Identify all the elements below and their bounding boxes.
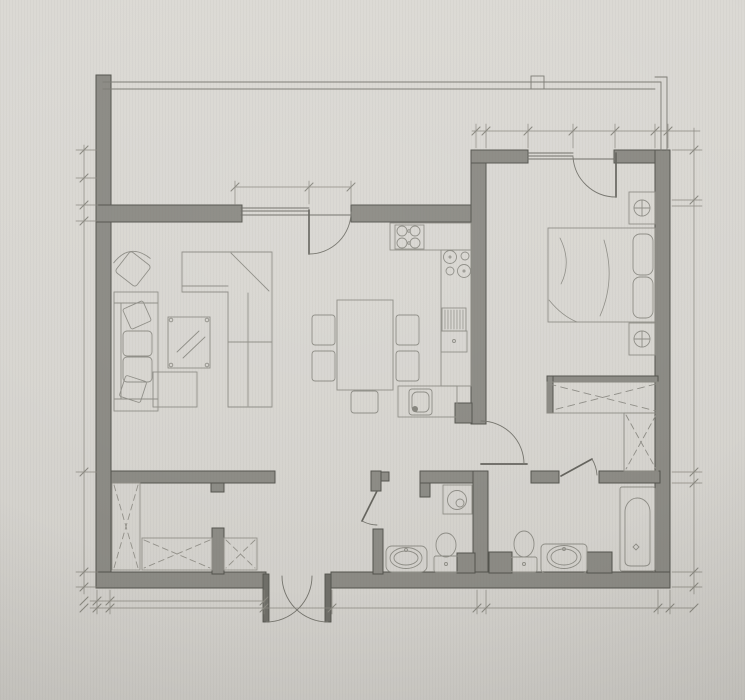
entry-closets bbox=[112, 483, 257, 570]
corridor-wall-mid-stub bbox=[420, 483, 430, 497]
ottoman bbox=[153, 372, 197, 407]
sectional-sofa-outline bbox=[182, 252, 272, 407]
blanket-fold bbox=[549, 300, 577, 322]
entry-door-left-swing bbox=[266, 576, 312, 622]
room-balcony bbox=[103, 89, 661, 205]
wc-west-flange bbox=[381, 472, 389, 481]
wardrobe-back-wall bbox=[547, 376, 658, 382]
kitchen bbox=[390, 223, 471, 417]
kitchen-bedroom-divider-wall bbox=[471, 150, 486, 424]
dining-chair bbox=[396, 315, 419, 345]
right-exterior-wall bbox=[655, 150, 670, 588]
bathtub-drain bbox=[633, 544, 639, 550]
balcony-railing bbox=[103, 76, 667, 150]
sofa-pillow-shape bbox=[122, 300, 151, 329]
bathroom-north-wall-east bbox=[599, 471, 660, 483]
bed-pillow bbox=[633, 277, 653, 318]
sofa-cushion bbox=[123, 357, 152, 382]
bedroom-north-wall-west bbox=[471, 150, 528, 163]
room-kitchen-dining bbox=[300, 222, 471, 471]
top-wall-east bbox=[351, 205, 486, 222]
toilet-tank bbox=[511, 557, 537, 572]
room-hallway bbox=[402, 422, 475, 471]
sink-tap bbox=[408, 242, 411, 245]
entry-closet-stub bbox=[212, 528, 224, 574]
armchair-back bbox=[114, 242, 150, 278]
bottom-ticks bbox=[80, 597, 88, 605]
coffee-table bbox=[168, 317, 210, 368]
corridor-wall-west bbox=[111, 471, 275, 483]
bedroom-door-swing bbox=[573, 157, 616, 197]
stove-dot bbox=[449, 256, 451, 258]
coffee-table-glass bbox=[177, 331, 199, 352]
bedroom bbox=[547, 192, 658, 471]
washer-drum-inner bbox=[456, 499, 464, 507]
island-tap bbox=[412, 406, 418, 412]
hallway-door-swing bbox=[481, 421, 524, 464]
bathroom-door-swing bbox=[592, 459, 597, 475]
counter-top bbox=[390, 223, 471, 250]
blanket-fold bbox=[560, 238, 566, 284]
stove-burner bbox=[461, 252, 469, 260]
bath-block-west bbox=[489, 552, 512, 573]
dining bbox=[312, 300, 419, 413]
dining-table bbox=[337, 300, 393, 390]
dining-chair bbox=[396, 351, 419, 381]
sofa-cushion bbox=[123, 331, 152, 356]
wc-door-leaf bbox=[362, 491, 377, 521]
room-entry-hall bbox=[112, 483, 371, 572]
bathtub-inner bbox=[625, 498, 650, 566]
dining-chair bbox=[312, 351, 335, 381]
appliance-box bbox=[441, 331, 467, 352]
coffee-table-dot bbox=[205, 318, 209, 322]
room-living bbox=[112, 222, 402, 471]
dining-chair bbox=[312, 315, 335, 345]
top-wall-west bbox=[96, 205, 242, 222]
bath-block-east bbox=[587, 552, 612, 573]
stove-dot bbox=[463, 270, 465, 272]
coffee-table-glass bbox=[183, 337, 205, 358]
corridor-wall-stub bbox=[211, 483, 224, 492]
entry-door-right-swing bbox=[282, 576, 328, 622]
floor-plan-page bbox=[0, 0, 745, 700]
dimensions bbox=[76, 124, 702, 614]
bottom-wall-west bbox=[96, 572, 266, 588]
wc-counter-block bbox=[457, 553, 475, 573]
counter-right bbox=[441, 250, 471, 386]
wc-toilet-dot bbox=[445, 563, 448, 566]
armchair bbox=[110, 242, 155, 287]
entry-door-right-leaf bbox=[325, 574, 331, 622]
wc-sink-basin-inner bbox=[394, 551, 418, 565]
sink-basin bbox=[397, 238, 407, 248]
sink-basin bbox=[410, 238, 420, 248]
bathroom-north-wall-west bbox=[531, 471, 559, 483]
toilet-bowl bbox=[514, 531, 534, 557]
wc-west-wall-upper bbox=[371, 471, 381, 491]
bath-sink-basin-inner bbox=[551, 549, 577, 565]
blanket-fold bbox=[600, 240, 609, 316]
coffee-table-dot bbox=[169, 318, 173, 322]
wc-door-swing bbox=[362, 521, 377, 525]
sink-basin bbox=[410, 226, 420, 236]
sink-basin bbox=[397, 226, 407, 236]
wc-toilet-tank bbox=[434, 556, 459, 572]
walls bbox=[96, 75, 670, 588]
bed-pillow bbox=[633, 234, 653, 275]
stove-burner bbox=[446, 267, 454, 275]
balcony-door-swing bbox=[309, 212, 351, 254]
counter-bottom bbox=[398, 386, 457, 417]
wc-west-wall-lower bbox=[373, 529, 383, 574]
left-exterior-wall bbox=[96, 75, 111, 588]
bathroom bbox=[511, 487, 655, 573]
stove-burner bbox=[444, 251, 457, 264]
wc-toilet-bowl bbox=[436, 533, 456, 557]
coffee-table-dot bbox=[169, 363, 173, 367]
sectional-sofa-lines bbox=[231, 253, 269, 291]
floor-plan-drawing bbox=[0, 0, 745, 700]
stove-burner bbox=[458, 265, 471, 278]
bathroom-door-leaf bbox=[561, 459, 592, 476]
coffee-table-dot bbox=[205, 363, 209, 367]
railing-step bbox=[531, 76, 544, 89]
room-dressing bbox=[490, 376, 622, 471]
appliance-dot bbox=[453, 340, 456, 343]
rooms bbox=[103, 89, 661, 572]
divider-flange bbox=[455, 403, 472, 423]
sofa-pillow bbox=[122, 300, 151, 329]
wc bbox=[386, 485, 472, 572]
room-bathroom bbox=[488, 483, 655, 572]
room-bedroom bbox=[486, 163, 655, 376]
sink-tap bbox=[408, 230, 411, 233]
wardrobe-side-cap bbox=[547, 376, 553, 413]
toilet-dot bbox=[523, 563, 526, 566]
bottom-ticks bbox=[80, 604, 88, 612]
living bbox=[110, 242, 272, 411]
dining-chair bbox=[351, 391, 378, 413]
